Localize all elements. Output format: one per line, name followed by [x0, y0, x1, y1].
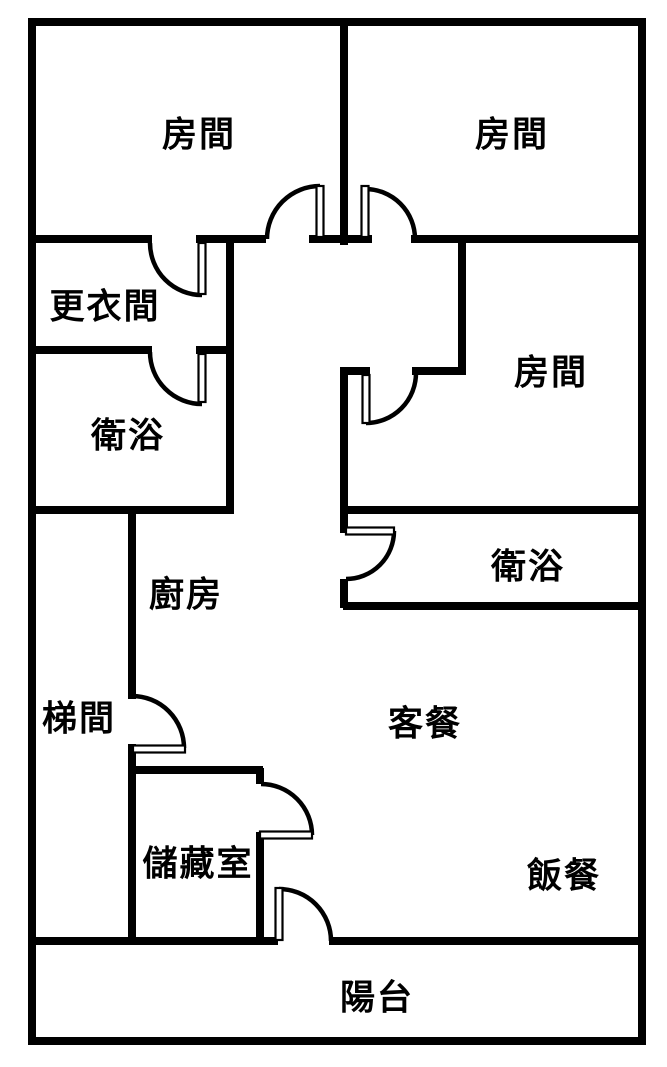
door-arc-bathroom-right	[346, 531, 394, 579]
interior-walls	[34, 26, 640, 941]
room-label-dressing-room: 更衣間	[49, 279, 160, 330]
room-label-bedroom-top-right: 房間	[475, 107, 549, 158]
door-arc-bedroom-right	[366, 373, 416, 423]
floorplan: 房間 房間 更衣間 衛浴 房間 衛浴 廚房 梯間 客餐 儲藏室 飯餐 陽台	[0, 0, 667, 1067]
door-leaf-bathroom-right	[346, 528, 394, 535]
room-label-bathroom-left: 衛浴	[91, 408, 165, 459]
floorplan-drawing	[0, 0, 667, 1067]
room-label-bedroom-top-left: 房間	[162, 107, 236, 158]
room-label-bathroom-right: 衛浴	[491, 539, 565, 590]
door-leaf-dressing-room	[199, 243, 206, 294]
door-arc-balcony	[279, 889, 331, 941]
door-leaf-bathroom-left	[199, 354, 206, 402]
room-label-storage-room: 儲藏室	[142, 836, 253, 887]
door-arc-bathroom-left	[150, 352, 202, 404]
room-label-kitchen: 廚房	[149, 567, 223, 618]
door-leaf-bedroom-right	[363, 375, 370, 423]
room-label-stairwell: 梯間	[42, 691, 116, 742]
door-leaves	[133, 186, 394, 940]
door-arc-bedroom-top-right	[365, 189, 415, 239]
door-arc-bedroom-top-left	[267, 186, 320, 239]
door-arc-stairwell	[132, 696, 184, 748]
door-leaf-bedroom-top-left	[317, 186, 324, 237]
door-leaf-stairwell	[133, 746, 185, 753]
door-leaf-bedroom-top-right	[362, 186, 369, 237]
room-label-living-dining: 客餐	[388, 696, 462, 747]
room-label-bedroom-right: 房間	[514, 345, 588, 396]
door-arc-storage-room	[261, 784, 312, 835]
door-swing-arcs	[132, 186, 416, 941]
room-label-dining-area: 飯餐	[527, 848, 601, 899]
door-leaf-storage-room	[260, 832, 312, 839]
room-label-balcony: 陽台	[340, 970, 414, 1021]
door-leaf-balcony	[276, 888, 283, 940]
